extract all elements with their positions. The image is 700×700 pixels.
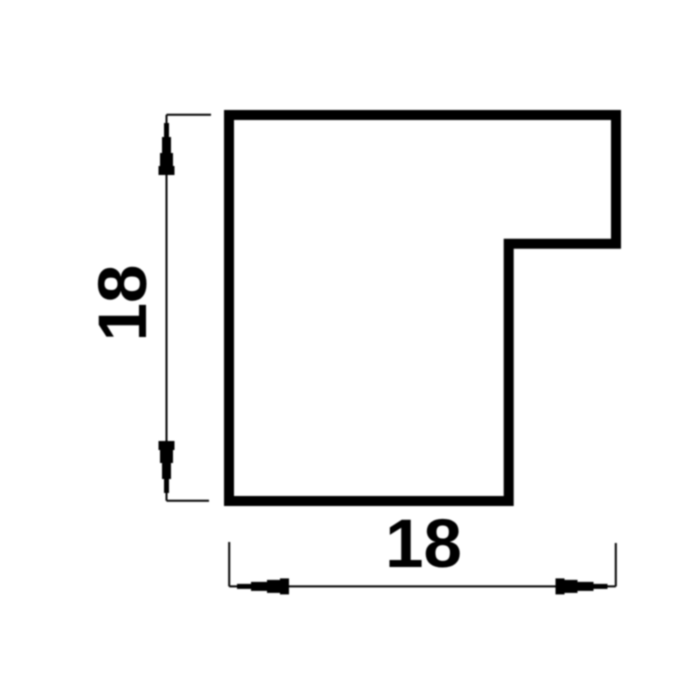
svg-text:18: 18 bbox=[385, 505, 462, 582]
svg-text:18: 18 bbox=[84, 265, 161, 342]
